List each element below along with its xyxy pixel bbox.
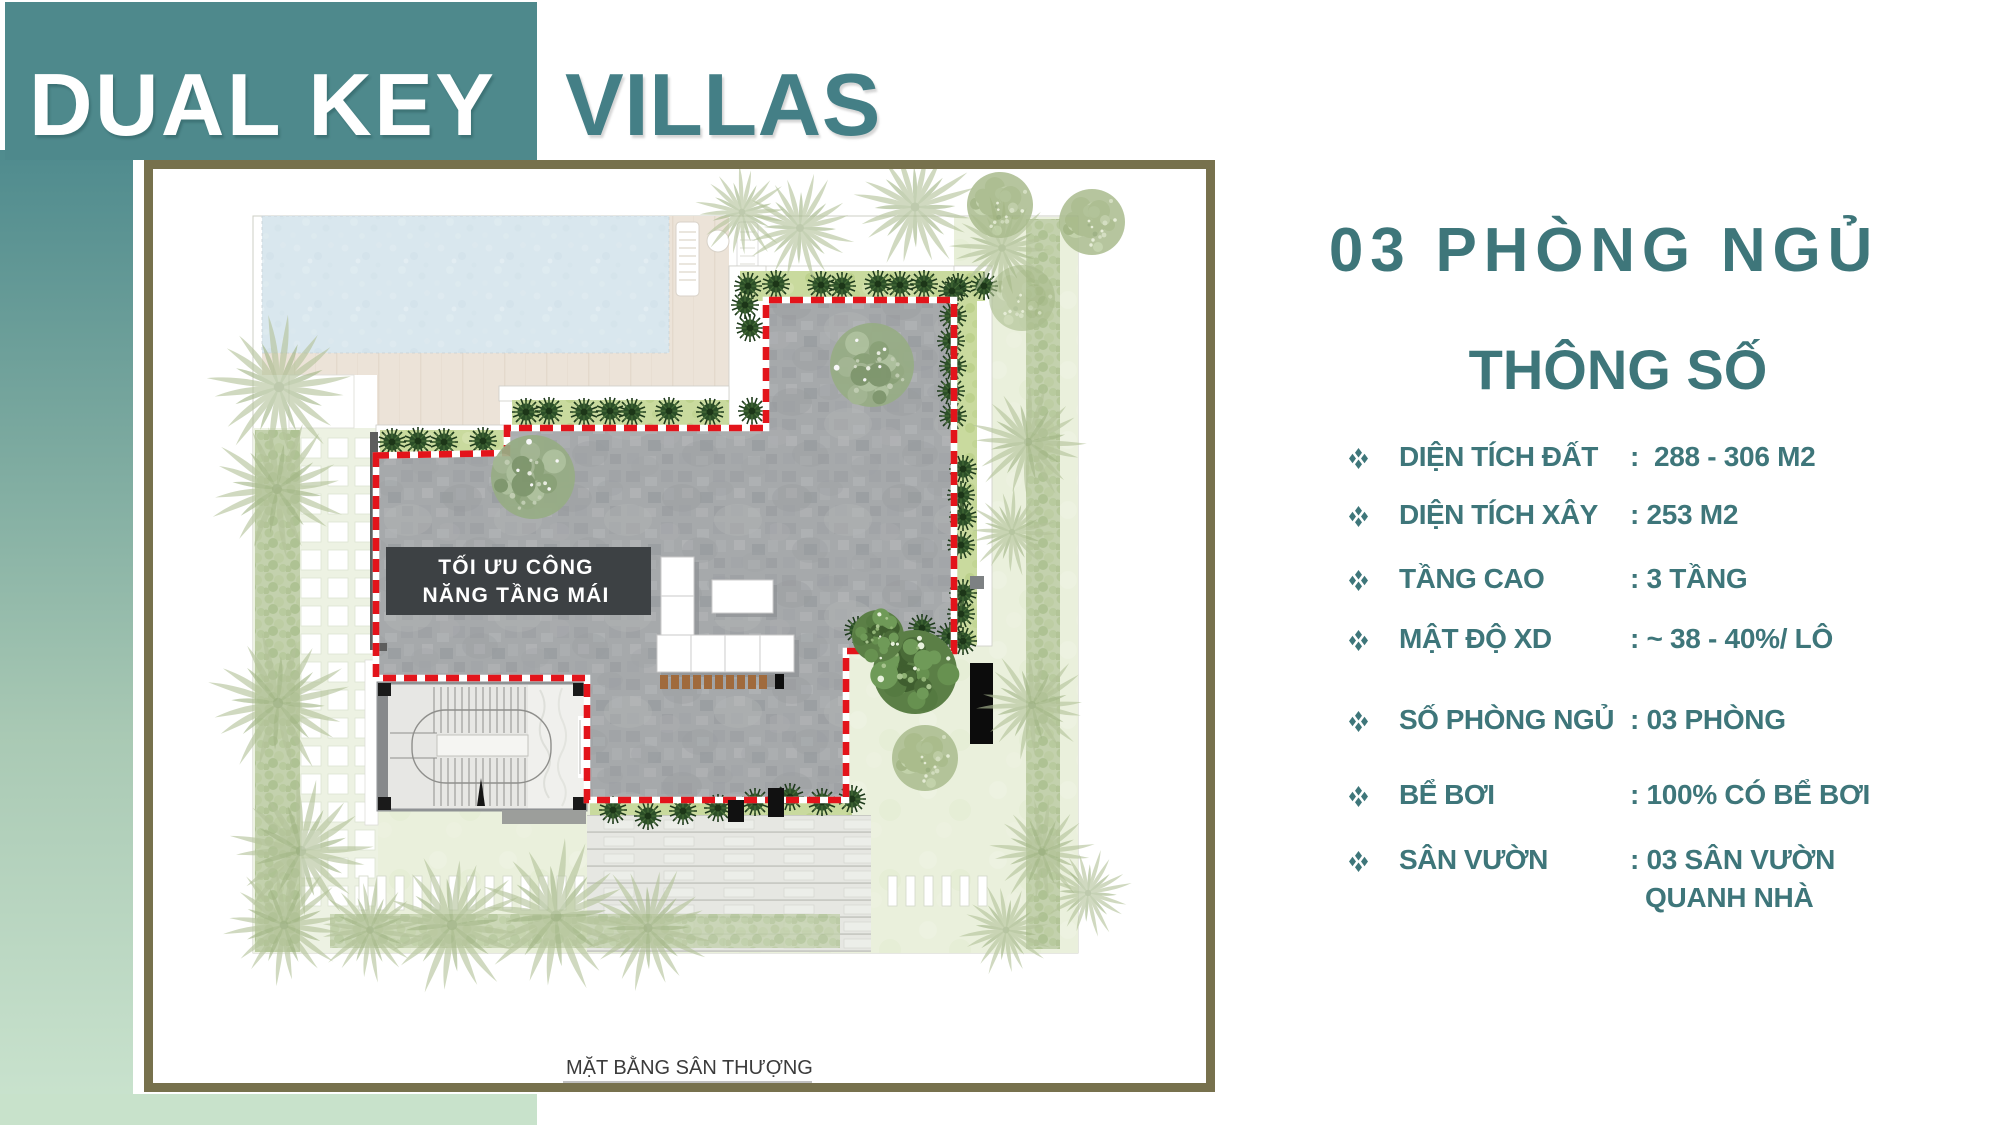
svg-text:TỐI ƯU CÔNG: TỐI ƯU CÔNG xyxy=(438,555,593,579)
svg-text:MẶT BẰNG SÂN THƯỢNG: MẶT BẰNG SÂN THƯỢNG xyxy=(566,1055,813,1079)
svg-text:NĂNG TẦNG MÁI: NĂNG TẦNG MÁI xyxy=(422,584,609,607)
